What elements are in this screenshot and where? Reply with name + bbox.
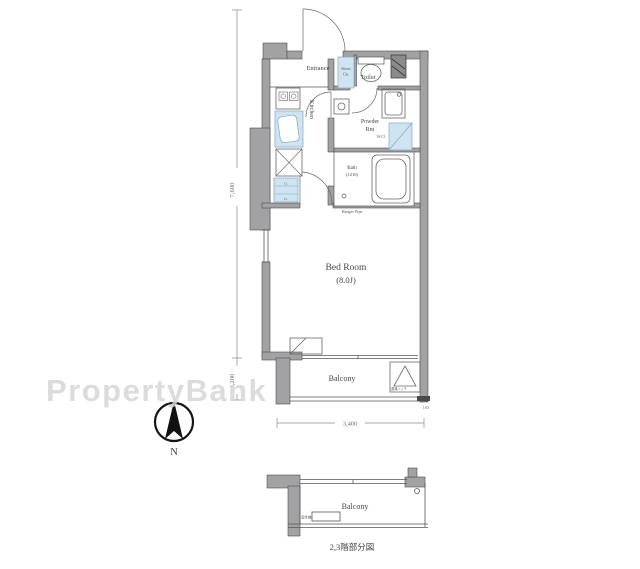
evacuation-hatch-triangle [394, 366, 416, 386]
toilet-label: Toilet [360, 74, 375, 81]
bedroom-furniture [290, 338, 322, 354]
lower-balcony-label: Balcony [342, 502, 369, 511]
wall-lower-left [288, 486, 300, 536]
bath-size-label: (1216) [346, 172, 359, 177]
compass-n-label: N [170, 447, 178, 458]
entrance-door-arc [303, 9, 345, 51]
dim-width: 3,400 [343, 421, 358, 428]
storage-label: Cl. [284, 182, 288, 186]
compass: N [155, 401, 193, 458]
powder-room-label: Powder [361, 119, 379, 125]
dim-right-small: 103 [423, 405, 429, 410]
counter-icon [290, 338, 322, 354]
toilet-tank-icon [358, 57, 384, 64]
powder-room-label: Rm [366, 127, 375, 133]
washing-machine-drum [385, 92, 402, 115]
watermark: PropertyBank [46, 373, 267, 408]
shoes-closet: Shoes Cls. [338, 57, 354, 88]
entrance-label: Entrance [306, 65, 329, 72]
shoes-closet-label: Shoes [341, 66, 351, 71]
bath-label: Bath [347, 166, 357, 171]
powder-fixtures [334, 89, 405, 118]
floorplan-page: Shoes Cls. W.Cl Bath (1216) Hanger Pipe [0, 0, 640, 569]
storage-label: Cl. [284, 197, 288, 201]
drain-hole [415, 489, 420, 494]
railing-end-block [417, 396, 430, 401]
wall-toilet-left [354, 55, 357, 86]
bedroom-size-label: (8.0J) [336, 275, 356, 285]
counter-diagonal [290, 338, 306, 354]
wall-toilet-2 [378, 86, 420, 90]
wall-balcony-left [276, 358, 290, 404]
shoes-closet-label: Cls. [343, 72, 349, 77]
wall-lower-right [405, 477, 425, 487]
wall-bedroom-1 [262, 203, 300, 208]
wall-right [420, 51, 428, 402]
kitchen-fixtures: Cl. Cl. [274, 88, 303, 202]
bedroom-door-arc [300, 172, 332, 204]
wall-left-bulge [250, 128, 270, 230]
wall-top-left-pillar [263, 43, 287, 59]
wcl-label: W.Cl [377, 134, 386, 139]
bath-fixtures [334, 152, 414, 206]
floorplan-drawing: Shoes Cls. W.Cl Bath (1216) Hanger Pipe [0, 0, 640, 569]
toilet-door-arc [352, 88, 377, 113]
washbasin-bowl [338, 103, 345, 110]
wall-corridor-2 [328, 118, 334, 152]
hatch-label: 避難ハッチ [391, 386, 407, 391]
washing-machine-knob [397, 93, 401, 97]
dim-height-main: 7,600 [229, 183, 236, 198]
wall-top-left [287, 51, 302, 59]
bedroom-label: Bed Room [326, 263, 368, 273]
outdoor-unit-label: 室外機 [301, 515, 312, 520]
wall-left-lower [262, 262, 270, 358]
balcony-label: Balcony [329, 374, 356, 383]
caption-label: 2,3階部分図 [330, 542, 375, 552]
wall-corridor-1 [328, 59, 334, 90]
sink-icon [277, 115, 299, 143]
wall-lower-stub [408, 468, 417, 477]
outdoor-unit-box [312, 512, 340, 521]
water-heater [391, 55, 406, 78]
washbasin-icon [334, 99, 349, 114]
hanger-pipe-label: Hanger Pipe [342, 209, 363, 214]
wcl-closet: W.Cl [377, 123, 412, 150]
stove-icon [276, 88, 300, 109]
kitchen-label: Kitchen [308, 100, 314, 119]
